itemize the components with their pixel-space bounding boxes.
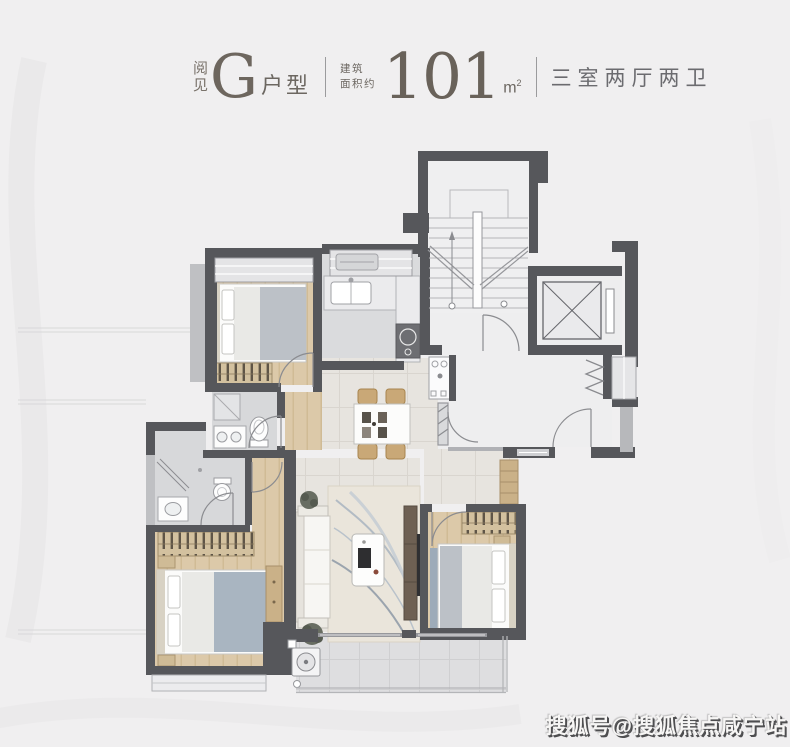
area-label-line: 建筑 — [340, 62, 376, 77]
pillow — [222, 324, 234, 354]
pillow — [168, 614, 180, 646]
unit-type-label: 户型 — [261, 68, 311, 100]
tv-console — [404, 506, 417, 620]
dining-chair — [358, 389, 377, 404]
tv — [417, 534, 420, 596]
divider-line — [325, 57, 326, 97]
brand-char: 见 — [193, 77, 209, 94]
dining-chair — [358, 444, 377, 459]
stair-rail — [473, 212, 482, 308]
brand-char: 阅 — [193, 60, 209, 77]
unit-letter: G — [210, 51, 258, 104]
watermark: 搜狐号@搜狐焦点咸宁站 — [546, 710, 787, 740]
dining-chair — [386, 389, 405, 404]
area-label-line: 面积约 — [340, 77, 376, 92]
nightstand — [158, 556, 175, 568]
area-unit: m2 — [503, 78, 521, 97]
balcony-floor — [296, 636, 506, 692]
dining-chair — [386, 444, 405, 459]
bay-window — [215, 258, 313, 282]
utility-basin — [429, 357, 450, 399]
area-label: 建筑 面积约 — [340, 62, 376, 92]
area-value: 101 — [383, 52, 500, 102]
pillow — [222, 290, 234, 320]
party-wall — [190, 264, 205, 382]
pillow — [168, 576, 180, 608]
floor-plan-page: 阅 见 G 户型 建筑 面积约 101 m2 三室两厅两卫 搜狐号@搜狐焦点咸宁… — [0, 0, 790, 747]
dresser — [266, 566, 282, 622]
elevator-icon — [537, 276, 622, 345]
side-window — [146, 455, 155, 525]
brand-logo: 阅 见 — [193, 60, 209, 95]
pillow — [492, 589, 505, 622]
pillow — [492, 551, 505, 584]
hallway-2-floor — [252, 458, 284, 536]
nightstand — [158, 655, 175, 666]
plan-header: 阅 见 G 户型 建筑 面积约 101 m2 三室两厅两卫 — [193, 44, 713, 110]
layout-description: 三室两厅两卫 — [551, 62, 713, 92]
divider-line — [536, 57, 537, 97]
hallway-1-floor — [285, 392, 322, 450]
living-room-furniture — [296, 486, 420, 645]
